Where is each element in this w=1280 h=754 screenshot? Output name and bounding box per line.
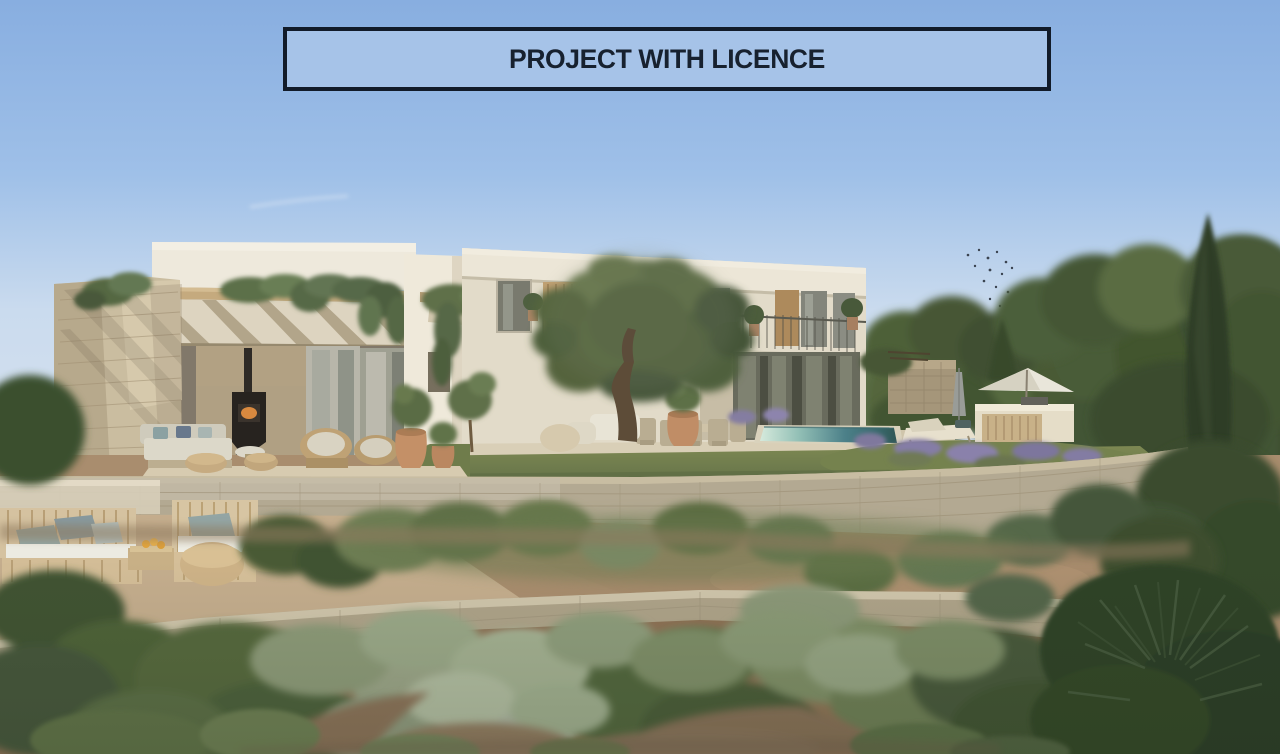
svg-text:PROJECT WITH LICENCE: PROJECT WITH LICENCE — [509, 44, 825, 74]
